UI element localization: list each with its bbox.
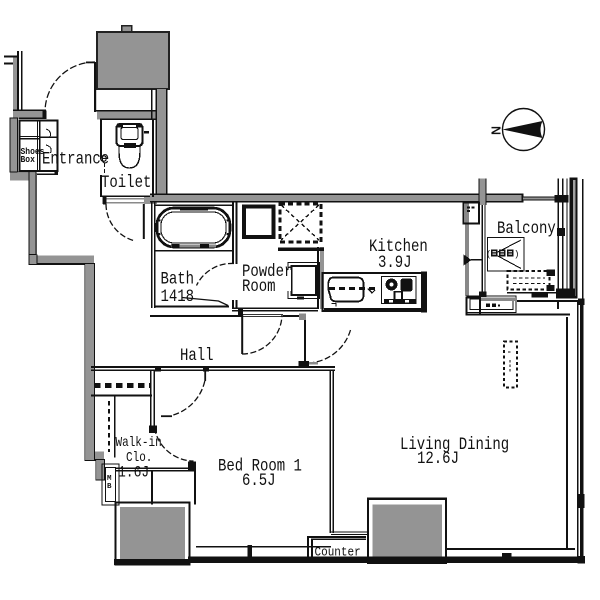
svg-text:Toilet: Toilet bbox=[101, 173, 151, 193]
svg-text:Box: Box bbox=[21, 154, 36, 165]
svg-text:): ) bbox=[514, 250, 519, 260]
svg-text:6.5J: 6.5J bbox=[242, 471, 276, 491]
svg-text:Hall: Hall bbox=[180, 345, 214, 365]
svg-text:Balcony: Balcony bbox=[497, 218, 556, 238]
svg-text:Entrance: Entrance bbox=[42, 149, 109, 169]
svg-text:(: ( bbox=[486, 250, 491, 260]
svg-text:Room: Room bbox=[242, 277, 276, 297]
svg-text:1.6J: 1.6J bbox=[118, 464, 149, 481]
svg-text:B: B bbox=[107, 483, 112, 491]
svg-text:Counter: Counter bbox=[315, 545, 361, 560]
svg-text:Walk-in: Walk-in bbox=[116, 435, 162, 450]
svg-text:3.9J: 3.9J bbox=[378, 252, 412, 272]
svg-text:N: N bbox=[489, 126, 503, 135]
svg-text:Clo.: Clo. bbox=[126, 450, 152, 465]
svg-text:12.6J: 12.6J bbox=[417, 448, 459, 468]
svg-text:M: M bbox=[107, 475, 112, 483]
svg-text:1418: 1418 bbox=[161, 287, 195, 307]
